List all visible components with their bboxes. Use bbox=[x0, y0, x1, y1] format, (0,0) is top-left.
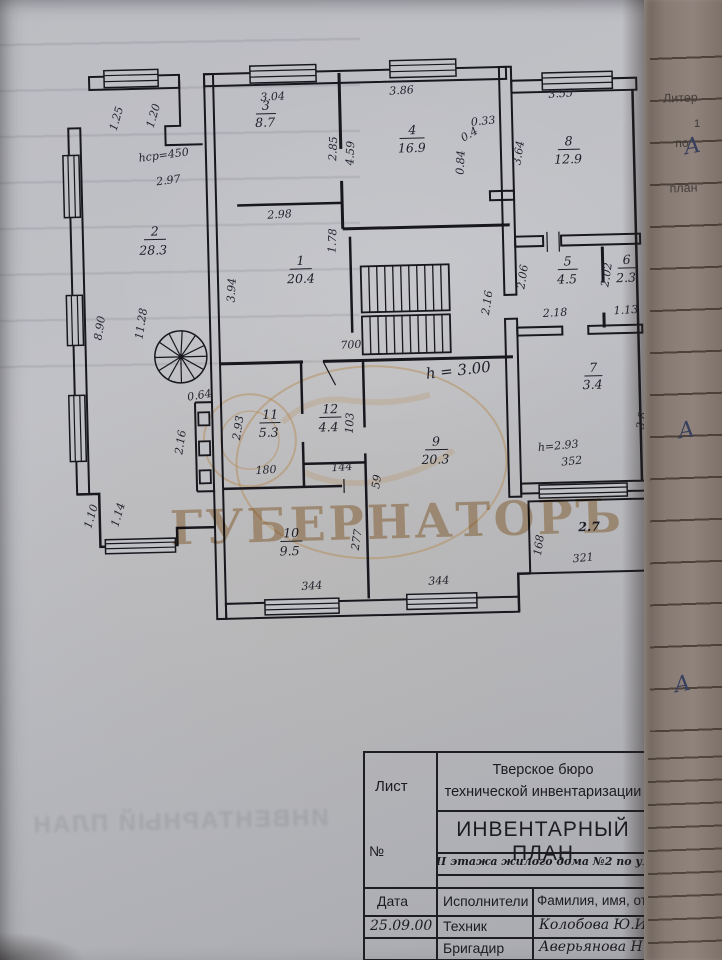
dim-label: 0.64 bbox=[186, 387, 212, 404]
dim-label: 344 bbox=[428, 574, 450, 588]
dim-label: h=2.93 bbox=[537, 437, 579, 454]
dim-label: 59 bbox=[369, 474, 384, 490]
litera-header-line2: по bbox=[649, 120, 715, 167]
photographed-inventory-plan-page: ИНВЕНТАРНЫЙ ПЛАН bbox=[0, 0, 722, 960]
dim-label: 3.94 bbox=[225, 278, 239, 303]
dim-label: 4.59 bbox=[343, 141, 357, 167]
room-area: 12.9 bbox=[554, 151, 582, 167]
dim-label: 321 bbox=[572, 550, 594, 565]
dim-label: 2.85 bbox=[326, 136, 340, 162]
dim-label: 2.02 bbox=[598, 262, 615, 289]
room-area: 8.7 bbox=[255, 115, 275, 130]
dim-label: 2.16 bbox=[479, 290, 496, 317]
role-technician: Техник bbox=[443, 918, 487, 934]
role-brigadier: Бригадир bbox=[443, 940, 504, 956]
number-label: № bbox=[369, 843, 384, 859]
litera-mark: А bbox=[682, 133, 703, 161]
dim-label: 1.10 bbox=[81, 503, 100, 530]
column-date: Дата bbox=[377, 893, 408, 909]
row-number: 1 bbox=[694, 118, 700, 130]
underlying-ledger-page: Литер по план 1 А А А bbox=[644, 0, 722, 960]
dim-label: 2.16 bbox=[172, 429, 189, 456]
room-number: 12 bbox=[322, 401, 338, 416]
height-note: h = 3.00 bbox=[425, 358, 492, 383]
room-number: 5 bbox=[563, 253, 571, 268]
dim-label: 3.64 bbox=[510, 140, 527, 166]
dim-label: 2.18 bbox=[541, 306, 567, 320]
dim-label: hср=450 bbox=[138, 145, 190, 164]
dim-label: 103 bbox=[343, 412, 357, 434]
dim-label: 1.14 bbox=[108, 501, 127, 528]
litera-mark: А bbox=[676, 417, 697, 445]
room-area: 16.9 bbox=[398, 140, 426, 156]
room-area: 20.4 bbox=[286, 271, 315, 287]
dim-label: 180 bbox=[255, 463, 277, 477]
org-name-line2: технической инвентаризации bbox=[436, 784, 650, 800]
dim-label: 2.06 bbox=[514, 264, 531, 291]
room-number: 4 bbox=[407, 122, 416, 137]
ruled-lines-dense bbox=[648, 737, 722, 960]
room-number: 2 bbox=[150, 223, 159, 238]
room-area: 4.4 bbox=[317, 419, 338, 435]
dim-label: 3.04 bbox=[260, 89, 285, 103]
dim-label: 8.90 bbox=[92, 315, 109, 341]
spiral-staircase bbox=[154, 330, 207, 383]
dim-label: 700 bbox=[340, 338, 362, 352]
dim-label: 144 bbox=[331, 460, 353, 474]
corner-shadow bbox=[0, 922, 120, 960]
dim-label: 1.78 bbox=[325, 228, 339, 253]
date-value: 25.09.00 bbox=[370, 918, 432, 934]
room-number: 11 bbox=[262, 407, 278, 422]
room-number: 1 bbox=[296, 253, 304, 268]
dim-label: 3.55 bbox=[548, 86, 573, 100]
document-subtitle: II этажа жилого дома №2 по ул. Тверевод bbox=[436, 855, 650, 868]
room-area: 5.3 bbox=[259, 425, 279, 440]
sheet-label: Лист bbox=[375, 778, 408, 795]
room-area: 4.5 bbox=[556, 271, 577, 287]
dim-label: 0.84 bbox=[453, 150, 467, 175]
dim-label: 2.97 bbox=[154, 172, 181, 188]
dim-label: 11.28 bbox=[133, 307, 151, 340]
dim-label: 1.25 bbox=[107, 105, 126, 132]
room-area: 28.3 bbox=[138, 242, 167, 258]
org-name-line1: Тверское бюро bbox=[436, 762, 650, 778]
litera-mark: А bbox=[672, 671, 693, 699]
room-number: 9 bbox=[432, 434, 440, 449]
column-executors: Исполнители bbox=[443, 893, 528, 909]
watermark-text: ГУБЕРНАТОРЪ bbox=[169, 491, 560, 557]
litera-header-line1: Литер bbox=[648, 75, 714, 122]
dim-label: 344 bbox=[301, 579, 323, 593]
page-fold-shadow bbox=[622, 0, 644, 960]
room-area: 20.3 bbox=[420, 451, 449, 467]
litera-header-line3: план bbox=[651, 165, 717, 212]
room-number: 8 bbox=[565, 133, 573, 148]
title-block-divider bbox=[532, 887, 534, 960]
dim-label: 1.20 bbox=[144, 102, 163, 129]
staircase bbox=[361, 264, 451, 354]
room-number: 7 bbox=[589, 360, 597, 375]
dim-label: 352 bbox=[561, 454, 583, 469]
dim-label: 2.93 bbox=[230, 415, 247, 442]
room-area: 3.4 bbox=[583, 377, 603, 392]
litera-column-header: Литер по план bbox=[648, 75, 717, 212]
dim-label: 3.86 bbox=[389, 83, 414, 97]
dim-label: 2.98 bbox=[266, 207, 292, 221]
